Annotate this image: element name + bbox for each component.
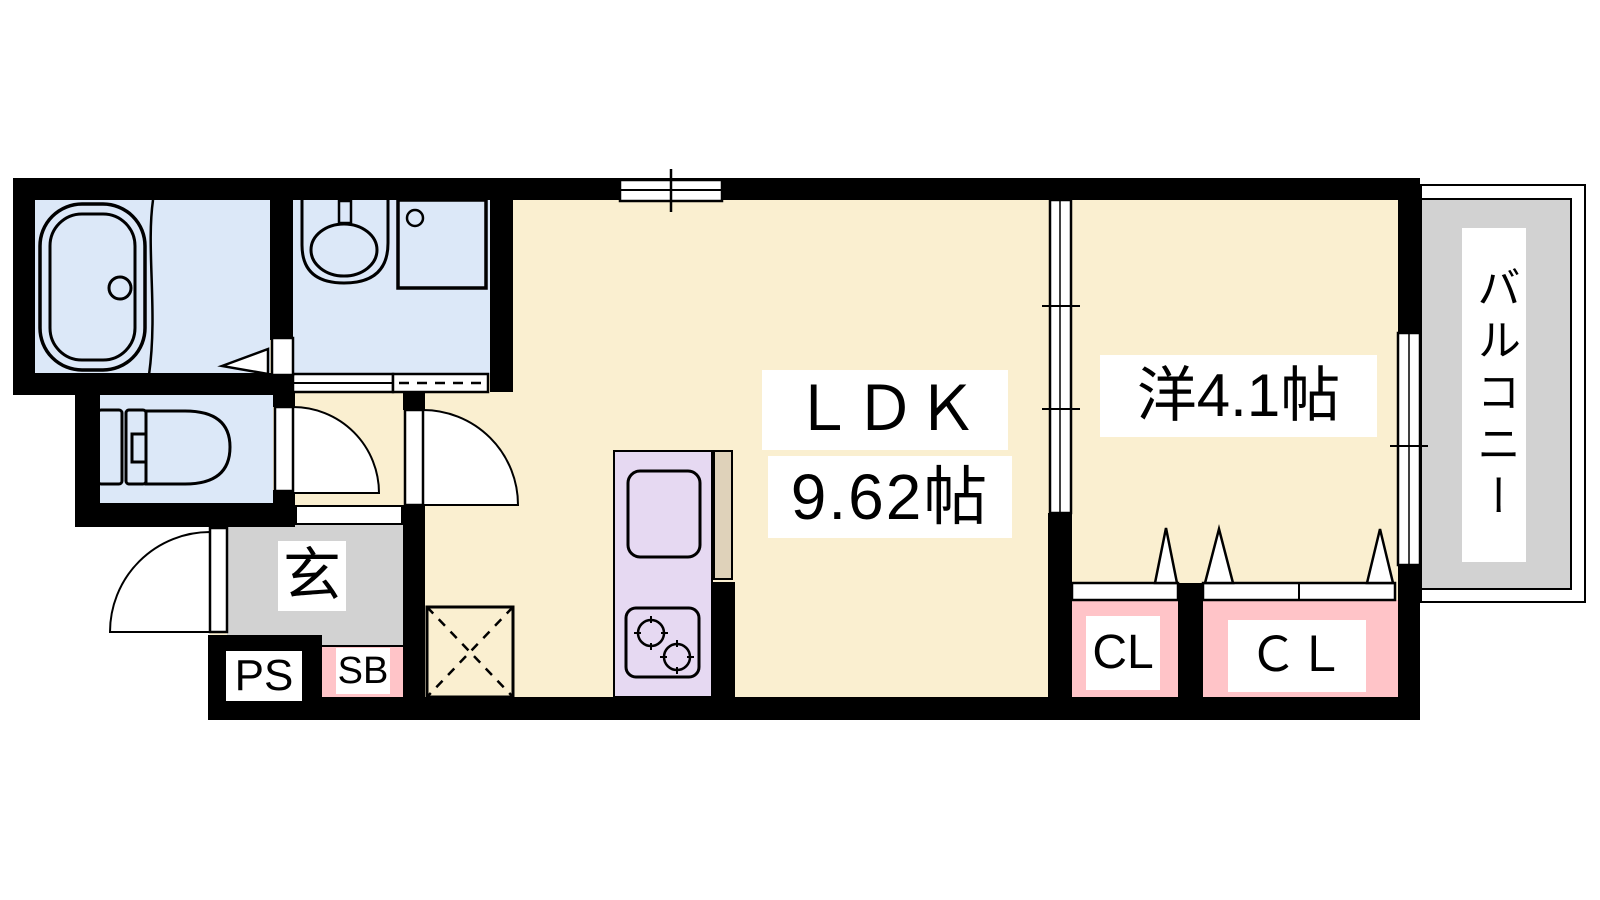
bathtub-icon [40,204,145,370]
washroom-sliding-door-icon [293,374,393,392]
kitchen-sink-icon [628,471,700,557]
bathroom-door-icon [222,349,268,374]
top-window-icon [620,169,722,212]
ldk-door-icon [405,410,518,505]
balcony-window-icon [1390,333,1428,565]
washbasin-icon [302,200,388,283]
pipe-space-label: PS [226,651,302,701]
toilet-icon [98,410,230,484]
closet-small-label: CL [1086,616,1160,690]
ldk-room-label: ＬＤＫ [762,370,1008,450]
entrance-label: 玄 [278,541,346,611]
gas-stove-icon [626,608,699,677]
sliding-partition-icon [1042,200,1080,513]
toilet-door-icon [275,407,379,493]
closet-door-tracks-icon [1072,583,1395,600]
closet-door-triangles-icon [1155,528,1393,583]
fixtures-layer [0,0,1600,900]
shower-partition-icon [149,200,153,375]
closet-large-label: ＣＬ [1228,620,1366,692]
shoe-box-label: SB [336,648,390,694]
floor-plan-canvas: ＬＤＫ 9.62帖 洋4.1帖 バルコニー 玄 PS SB CL ＣＬ [0,0,1600,900]
balcony-label: バルコニー [1462,228,1526,562]
bathroom-door-panel [272,338,293,375]
dashed-opening-icon [393,374,488,392]
entrance-door-icon [110,528,227,632]
western-room-label: 洋4.1帖 [1100,355,1377,437]
ldk-size-label: 9.62帖 [768,456,1012,538]
washing-machine-pan-icon [398,200,486,288]
washing-machine-space-icon [427,607,513,697]
